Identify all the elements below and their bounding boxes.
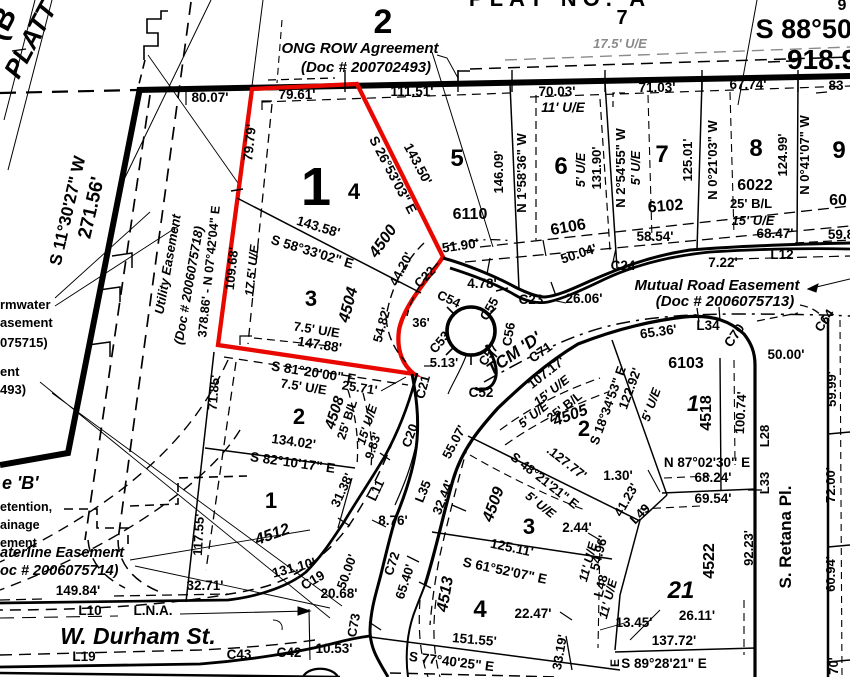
svg-text:5: 5 bbox=[450, 145, 463, 172]
svg-text:124.99': 124.99' bbox=[775, 134, 790, 177]
svg-text:4518: 4518 bbox=[698, 395, 715, 431]
svg-text:11' U/E: 11' U/E bbox=[541, 100, 585, 115]
svg-text:10.53': 10.53' bbox=[316, 641, 353, 656]
svg-text:L34: L34 bbox=[696, 318, 720, 333]
svg-text:13.45': 13.45' bbox=[616, 615, 653, 630]
svg-text:2: 2 bbox=[293, 404, 305, 429]
svg-text:075715): 075715) bbox=[0, 335, 48, 350]
svg-text:L28: L28 bbox=[757, 425, 772, 447]
svg-text:26.11': 26.11' bbox=[679, 608, 715, 623]
svg-text:2: 2 bbox=[374, 3, 393, 41]
svg-text:7: 7 bbox=[655, 141, 668, 168]
svg-text:59.99': 59.99' bbox=[824, 371, 839, 407]
svg-text:9: 9 bbox=[832, 137, 845, 164]
svg-text:Mutual Road Easement: Mutual Road Easement bbox=[634, 277, 800, 294]
svg-text:aterline Easement: aterline Easement bbox=[0, 545, 125, 561]
svg-text:5.13': 5.13' bbox=[430, 355, 458, 370]
svg-text:83: 83 bbox=[828, 78, 844, 93]
svg-text:1: 1 bbox=[301, 157, 331, 217]
svg-text:N 0°41'07" W: N 0°41'07" W bbox=[797, 115, 812, 195]
svg-text:6110: 6110 bbox=[453, 206, 488, 223]
svg-text:67.74': 67.74' bbox=[730, 77, 767, 92]
svg-text:3: 3 bbox=[305, 286, 317, 311]
svg-text:137.72': 137.72' bbox=[652, 633, 697, 648]
svg-text:21: 21 bbox=[667, 577, 695, 604]
svg-text:L33: L33 bbox=[757, 472, 772, 494]
svg-text:71.85': 71.85' bbox=[204, 374, 222, 411]
svg-text:4: 4 bbox=[348, 179, 361, 204]
svg-text:9: 9 bbox=[838, 0, 847, 14]
svg-text:C42: C42 bbox=[277, 645, 302, 660]
svg-text:60.94': 60.94' bbox=[823, 556, 838, 592]
svg-text:71.03': 71.03' bbox=[639, 80, 676, 95]
svg-text:17.5' U/E: 17.5' U/E bbox=[593, 36, 647, 51]
svg-text:(Doc # 2006075713): (Doc # 2006075713) bbox=[656, 293, 794, 310]
svg-text:N 0°21'03" W: N 0°21'03" W bbox=[705, 120, 720, 200]
svg-text:C23: C23 bbox=[519, 292, 544, 307]
svg-text:4: 4 bbox=[473, 596, 487, 623]
svg-text:N 2°54'55" W: N 2°54'55" W bbox=[613, 128, 628, 208]
svg-text:4522: 4522 bbox=[701, 543, 718, 579]
svg-text:5' U/E: 5' U/E bbox=[574, 152, 588, 187]
svg-text:L10: L10 bbox=[78, 603, 101, 618]
svg-text:5' U/E: 5' U/E bbox=[629, 150, 643, 185]
svg-text:(Doc # 200702493): (Doc # 200702493) bbox=[301, 59, 431, 76]
svg-text:58.54': 58.54' bbox=[637, 229, 674, 244]
svg-text:2.44': 2.44' bbox=[562, 520, 592, 535]
svg-text:3: 3 bbox=[523, 514, 535, 539]
svg-text:79.61': 79.61' bbox=[279, 87, 316, 102]
svg-text:70.03': 70.03' bbox=[539, 84, 576, 99]
svg-text:125.01': 125.01' bbox=[680, 139, 695, 182]
svg-text:493): 493) bbox=[0, 382, 26, 397]
svg-text:C52: C52 bbox=[469, 385, 494, 400]
svg-text:68.24': 68.24' bbox=[695, 470, 732, 485]
svg-text:59.8: 59.8 bbox=[828, 227, 850, 242]
svg-text:50.00': 50.00' bbox=[768, 347, 805, 362]
svg-text:C43: C43 bbox=[227, 647, 252, 662]
svg-text:60: 60 bbox=[829, 192, 847, 209]
svg-text:ainage: ainage bbox=[0, 518, 40, 532]
svg-text:146.09': 146.09' bbox=[491, 151, 506, 194]
svg-text:117.55': 117.55' bbox=[190, 513, 207, 556]
svg-text:6103: 6103 bbox=[668, 355, 704, 372]
svg-text:22.47': 22.47' bbox=[515, 606, 552, 621]
svg-text:etention,: etention, bbox=[0, 500, 52, 514]
svg-text:N 1°58'36" W: N 1°58'36" W bbox=[514, 133, 529, 213]
svg-text:72.00': 72.00' bbox=[823, 467, 838, 503]
svg-text:asement: asement bbox=[0, 315, 53, 330]
svg-text:E: E bbox=[608, 659, 622, 667]
svg-text:100.74': 100.74' bbox=[732, 391, 749, 435]
svg-text:918.9: 918.9 bbox=[787, 44, 850, 75]
svg-text:oc # 2006075714): oc # 2006075714) bbox=[0, 563, 119, 579]
svg-text:L12: L12 bbox=[770, 247, 793, 262]
svg-text:e 'B': e 'B' bbox=[2, 473, 39, 493]
svg-text:1: 1 bbox=[265, 488, 277, 513]
svg-text:69.54': 69.54' bbox=[695, 491, 732, 506]
svg-text:7.22': 7.22' bbox=[708, 255, 738, 270]
svg-text:25' B/L: 25' B/L bbox=[730, 196, 772, 211]
svg-text:8.76': 8.76' bbox=[378, 513, 408, 528]
svg-text:C24: C24 bbox=[611, 258, 636, 273]
svg-text:6: 6 bbox=[554, 153, 567, 180]
svg-text:92.23': 92.23' bbox=[741, 530, 756, 566]
svg-text:N 87°02'30" E: N 87°02'30" E bbox=[664, 455, 750, 470]
svg-text:32.71': 32.71' bbox=[187, 578, 224, 593]
svg-text:7: 7 bbox=[616, 7, 627, 29]
svg-text:rmwater: rmwater bbox=[0, 297, 51, 312]
svg-text:S 88°50': S 88°50' bbox=[756, 14, 850, 44]
svg-text:W. Durham St.: W. Durham St. bbox=[60, 623, 215, 649]
svg-text:S 89°28'21" E: S 89°28'21" E bbox=[621, 656, 707, 671]
svg-text:80.07': 80.07' bbox=[192, 90, 229, 105]
svg-text:131.90': 131.90' bbox=[589, 147, 604, 190]
svg-text:70': 70' bbox=[826, 657, 841, 675]
svg-text:149.84': 149.84' bbox=[56, 583, 101, 598]
svg-text:6102: 6102 bbox=[647, 196, 684, 216]
svg-text:4.78': 4.78' bbox=[467, 276, 497, 291]
svg-text:S. Retana Pl.: S. Retana Pl. bbox=[776, 486, 795, 589]
svg-text:20.68': 20.68' bbox=[321, 586, 358, 601]
svg-text:L19: L19 bbox=[72, 649, 95, 664]
svg-text:ent: ent bbox=[0, 364, 20, 379]
svg-text:L.N.A.: L.N.A. bbox=[134, 603, 173, 618]
svg-text:26.06': 26.06' bbox=[566, 291, 603, 306]
svg-text:6022: 6022 bbox=[737, 177, 773, 194]
svg-text:68.47': 68.47' bbox=[757, 226, 794, 241]
svg-text:8: 8 bbox=[749, 135, 762, 162]
svg-text:36': 36' bbox=[412, 315, 430, 330]
svg-text:111.51': 111.51' bbox=[390, 84, 433, 99]
svg-text:ONG ROW Agreement: ONG ROW Agreement bbox=[282, 40, 440, 57]
